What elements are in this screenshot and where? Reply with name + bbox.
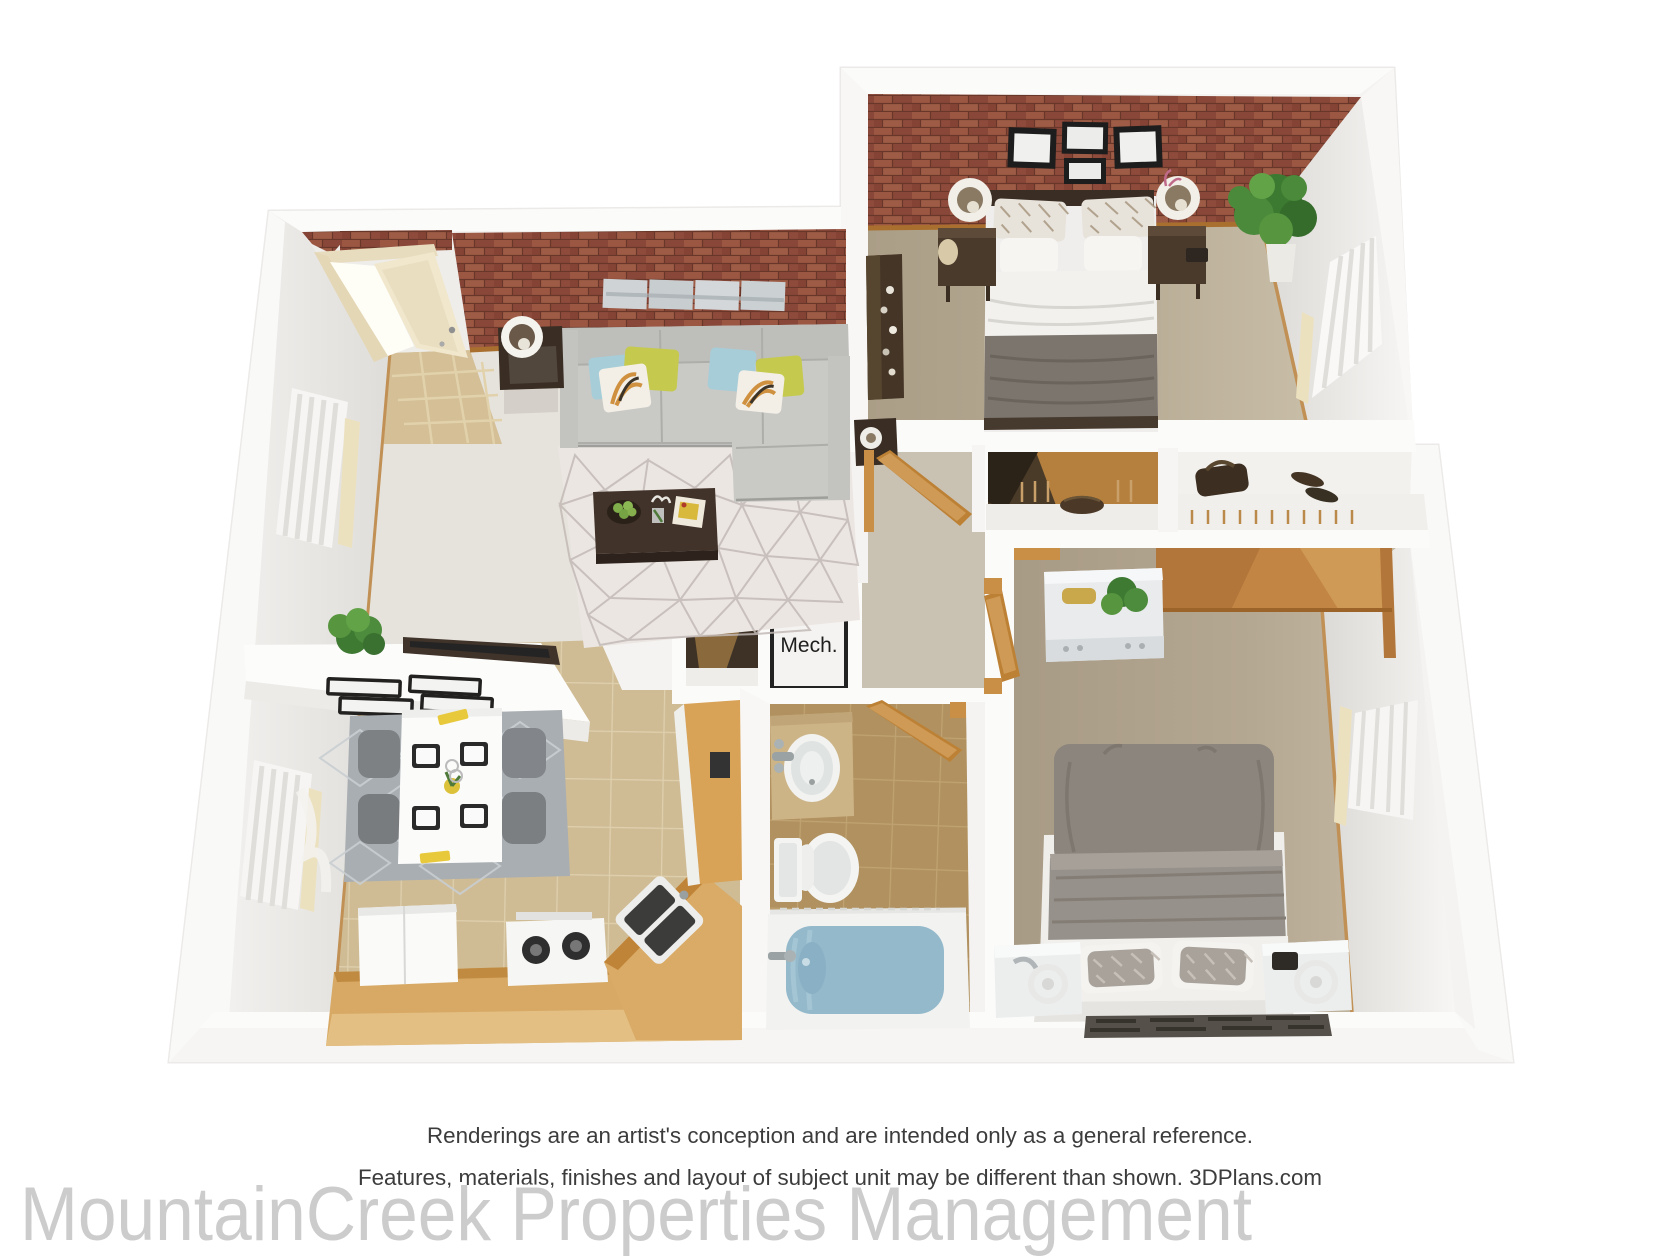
svg-text:MountainCreek Properties Manag: MountainCreek Properties Management [20,1172,1252,1257]
svg-text:Renderings are an artist's con: Renderings are an artist's conception an… [427,1123,1253,1148]
svg-text:Mech.: Mech. [780,634,837,657]
